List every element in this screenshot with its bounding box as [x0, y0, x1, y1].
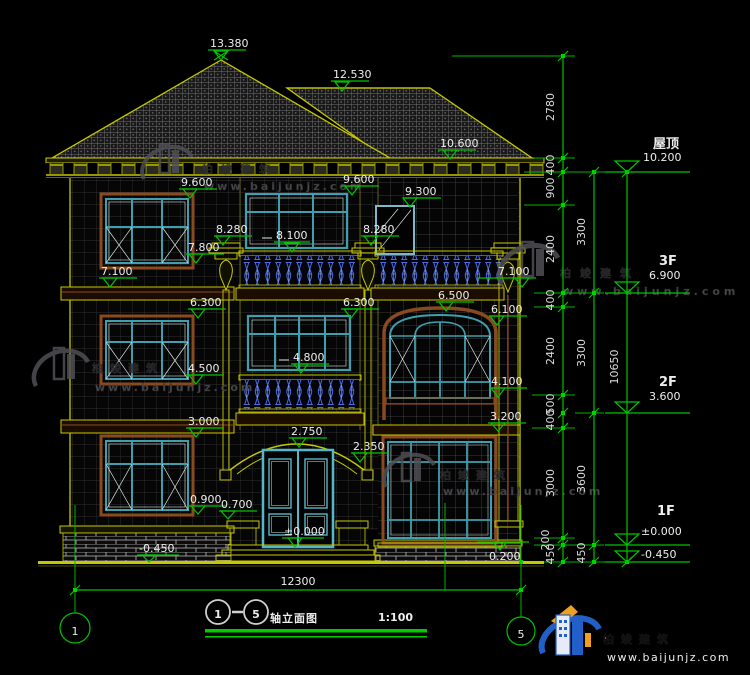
svg-text:2400: 2400 [544, 235, 557, 263]
svg-text:450: 450 [544, 544, 557, 565]
svg-text:4.800: 4.800 [293, 351, 325, 364]
drawing-canvas: 柏竣建筑 www.baijunjz.com 柏竣建筑 www.baijunjz.… [0, 0, 750, 675]
svg-text:-0.450: -0.450 [641, 548, 676, 561]
svg-text:7.100: 7.100 [101, 265, 133, 278]
drawing-scale: 1:100 [378, 611, 413, 624]
logo-accent-bar [585, 633, 591, 647]
svg-text:2.750: 2.750 [291, 425, 323, 438]
balustrade-3f-right [375, 251, 503, 288]
svg-text:±0.000: ±0.000 [641, 525, 682, 538]
floor-band-2f-right [373, 425, 520, 435]
svg-text:8.280: 8.280 [363, 223, 395, 236]
svg-text:6.300: 6.300 [343, 296, 375, 309]
dentil-band [46, 163, 544, 174]
logo-url-text: www.baijunjz.com [607, 651, 730, 664]
svg-text:3F: 3F [659, 254, 677, 269]
svg-text:7.800: 7.800 [188, 241, 220, 254]
svg-text:3000: 3000 [544, 469, 557, 497]
logo-brand-text: 柏竣建筑 [603, 632, 675, 646]
svg-text:900: 900 [544, 178, 557, 199]
svg-text:9.600: 9.600 [343, 173, 375, 186]
overall-width-dim: 12300 [281, 575, 316, 588]
svg-text:0.200: 0.200 [489, 550, 521, 563]
svg-text:6.500: 6.500 [438, 289, 470, 302]
svg-text:8.280: 8.280 [216, 223, 248, 236]
svg-text:13.380: 13.380 [210, 37, 249, 50]
fascia-board [46, 158, 544, 163]
watermark-url: www.baijunjz.com [204, 180, 364, 193]
title-axis-start: 1 [214, 608, 222, 621]
svg-text:450: 450 [575, 543, 588, 564]
svg-text:3.200: 3.200 [490, 410, 522, 423]
svg-text:400: 400 [544, 410, 557, 431]
balustrade-3f-mid [239, 251, 361, 288]
svg-text:3.000: 3.000 [188, 415, 220, 428]
svg-text:6.300: 6.300 [190, 296, 222, 309]
svg-text:3300: 3300 [575, 339, 588, 367]
watermark-brand: 柏竣建筑 [440, 468, 512, 482]
title-underline-thick [205, 629, 427, 633]
svg-text:±0.000: ±0.000 [284, 525, 325, 538]
watermark-url: www.baijunjz.com [563, 285, 739, 298]
svg-text:6.100: 6.100 [491, 303, 523, 316]
title-axis-end: 5 [252, 608, 260, 621]
watermark-url: www.baijunjz.com [95, 381, 255, 394]
logo-tower-white [556, 615, 570, 655]
floor-band-2f-mid [236, 413, 364, 425]
svg-text:400: 400 [544, 155, 557, 176]
svg-text:400: 400 [544, 290, 557, 311]
watermark-brand: 柏竣建筑 [92, 361, 164, 375]
svg-text:0.700: 0.700 [221, 498, 253, 511]
svg-text:1F: 1F [657, 504, 675, 519]
svg-text:3.600: 3.600 [649, 390, 681, 403]
svg-text:6.900: 6.900 [649, 269, 681, 282]
svg-text:-0.450: -0.450 [139, 542, 174, 555]
svg-text:8.100: 8.100 [276, 229, 308, 242]
svg-text:4.500: 4.500 [188, 362, 220, 375]
svg-text:3300: 3300 [575, 218, 588, 246]
title-underline-thin [205, 636, 427, 638]
svg-text:0.900: 0.900 [190, 493, 222, 506]
svg-text:12.530: 12.530 [333, 68, 372, 81]
svg-text:2F: 2F [659, 375, 677, 390]
svg-text:10.600: 10.600 [440, 137, 479, 150]
svg-text:10.200: 10.200 [643, 151, 682, 164]
balustrade-2f-mid [239, 375, 361, 412]
axis-number-left: 1 [72, 625, 79, 638]
svg-text:9.600: 9.600 [181, 176, 213, 189]
axis-number-right: 5 [518, 628, 525, 641]
svg-text:7.100: 7.100 [498, 265, 530, 278]
cad-elevation-drawing: 柏竣建筑 www.baijunjz.com 柏竣建筑 www.baijunjz.… [0, 0, 750, 675]
svg-text:3600: 3600 [575, 465, 588, 493]
svg-text:2400: 2400 [544, 337, 557, 365]
drawing-title: 轴立面图 [270, 611, 318, 625]
watermark-brand: 柏竣建筑 [560, 266, 640, 280]
svg-text:9.300: 9.300 [405, 185, 437, 198]
logo-tower-blue [572, 621, 583, 655]
svg-text:屋顶: 屋顶 [653, 137, 679, 152]
svg-text:2780: 2780 [544, 93, 557, 121]
svg-text:4.100: 4.100 [491, 375, 523, 388]
watermark-brand: 柏竣建筑 [202, 162, 278, 176]
svg-text:10650: 10650 [608, 350, 621, 385]
svg-text:2.350: 2.350 [353, 440, 385, 453]
